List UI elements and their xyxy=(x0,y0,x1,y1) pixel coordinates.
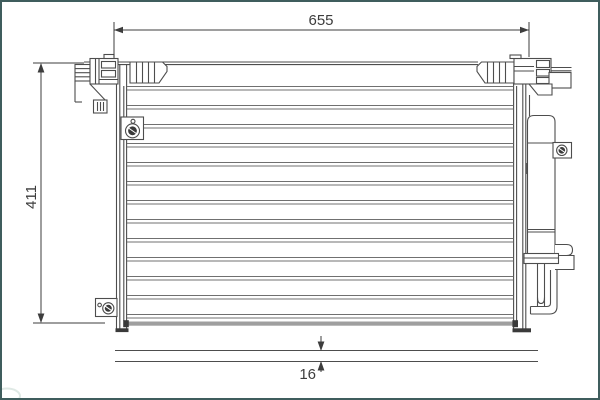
arrow-right-icon xyxy=(520,27,529,33)
left-tank xyxy=(116,64,129,332)
dimension-overall-width: 655 xyxy=(114,12,529,57)
right-outlet-fitting xyxy=(477,62,514,83)
core-bottom-band xyxy=(127,322,514,326)
band-cap-left xyxy=(123,320,129,327)
bracket-lower-wedge xyxy=(529,84,552,95)
arrow-up-icon xyxy=(318,361,325,371)
condenser-front-view xyxy=(75,55,574,333)
core-depth-label: 16 xyxy=(299,366,316,383)
bracket-top-tab xyxy=(104,55,114,59)
drier-bolt-bracket xyxy=(553,143,572,159)
right-foot xyxy=(513,328,532,332)
condenser-technical-drawing: 655 411 16 xyxy=(0,0,600,400)
receiver-drier xyxy=(524,116,574,315)
bracket-top-tab xyxy=(510,55,521,59)
bottom-left-bolt-plate xyxy=(96,299,118,317)
left-inlet-fitting xyxy=(130,62,167,83)
left-middle-bolt-plate xyxy=(121,117,144,140)
band-cap-right xyxy=(512,320,518,327)
drawing-canvas: 655 411 16 xyxy=(0,0,600,400)
drier-lower-pipes xyxy=(531,264,558,315)
left-foot xyxy=(116,328,129,332)
arrow-down-icon xyxy=(318,342,325,352)
overall-width-label: 655 xyxy=(308,12,333,29)
condenser-side-view xyxy=(115,351,538,362)
top-right-bracket xyxy=(510,55,572,116)
drier-cylinder xyxy=(528,116,556,254)
dimension-core-depth: 16 xyxy=(299,336,324,383)
arrow-up-icon xyxy=(38,63,45,73)
overall-height-label: 411 xyxy=(23,185,40,209)
arrow-left-icon xyxy=(114,27,123,33)
watermark-ellipse xyxy=(0,389,20,400)
dimension-overall-height: 411 xyxy=(23,63,105,323)
core-fin-rows xyxy=(127,87,514,319)
arrow-down-icon xyxy=(38,314,45,324)
